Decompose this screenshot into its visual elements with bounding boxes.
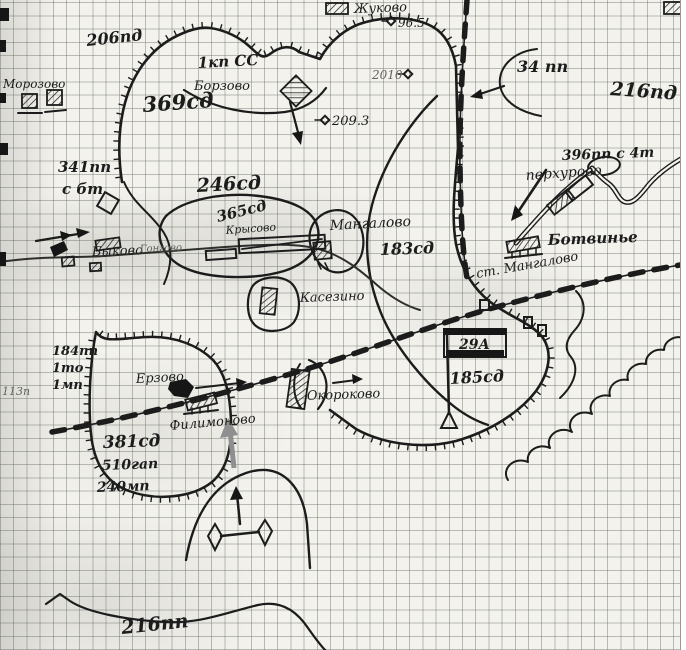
left-edge-marks <box>0 8 9 266</box>
map-drawing: 206пд Морозово 1кп СС Борзово 369сд Жуко… <box>0 0 686 650</box>
label-369sd: 369сд <box>142 87 215 117</box>
label-height-2010: 2010 <box>371 68 403 82</box>
kasezino-unit-symbol <box>260 287 278 314</box>
label-erzovo: Ерзово <box>134 369 184 387</box>
label-510gap: 510гап <box>102 456 159 474</box>
label-183sd: 183сд <box>379 238 434 259</box>
label-gongovo: Гонгово <box>139 243 183 255</box>
bottom-arc <box>186 470 310 568</box>
label-height-209-3: 209.3 <box>331 114 369 129</box>
label-246sd: 246сд <box>195 172 262 197</box>
label-1kpss: 1кп СС <box>197 51 259 72</box>
borzovo-diamond-symbol <box>280 75 311 106</box>
label-krysovo: Крысово <box>224 220 276 237</box>
boundary-west <box>124 182 170 284</box>
label-240mp: 240мп <box>96 478 150 496</box>
label-filimonovo: Филимоново <box>169 412 256 434</box>
label-kasezino: Касезино <box>299 289 365 306</box>
railroad-vertical <box>460 0 467 278</box>
hand-drawn-military-map: 206пд Морозово 1кп СС Борзово 369сд Жуко… <box>0 0 686 650</box>
label-184pp: 184пп <box>52 344 98 359</box>
label-396pp: 396пп с 4т <box>562 145 655 164</box>
label-29a: 29А <box>458 337 490 353</box>
label-206pd: 206пд <box>84 25 143 50</box>
zhukovo-unit-symbol <box>326 3 348 14</box>
cloud-chain <box>506 337 684 480</box>
cloud-bracket <box>560 291 584 398</box>
label-mangalovo: Мангалово <box>328 214 411 234</box>
okorokovo-arrow <box>333 374 363 384</box>
label-381sd: 381сд <box>102 431 160 453</box>
label-216pd: 216пд <box>609 78 678 105</box>
mangalovo-unit-symbol <box>313 241 331 269</box>
label-height-96-5: 96.5 <box>398 16 425 30</box>
label-bykovo: Быково <box>91 243 144 260</box>
bykovo-advance-arrow <box>36 228 90 241</box>
height-symbol-209-3 <box>315 116 329 124</box>
bottom-arrow-up <box>230 486 243 524</box>
label-185sd: 185сд <box>449 366 504 388</box>
label-1mp: 1мп <box>52 378 83 393</box>
erzovo-arrow <box>196 378 247 388</box>
label-okorokovo: Окороково <box>307 386 381 404</box>
label-zhukovo: Жуково <box>353 0 408 17</box>
label-34pp: 34 пп <box>517 57 568 76</box>
arrow-34pp <box>470 86 504 99</box>
label-113p: 113п <box>2 385 30 398</box>
label-morozovo: Морозово <box>2 77 65 91</box>
label-341pp: 341пп <box>58 158 111 176</box>
station-unit-symbol <box>505 236 542 258</box>
morozovo-symbols <box>18 90 66 113</box>
label-botvinye: Ботвинье <box>547 228 638 249</box>
scan-edge-strip <box>680 0 686 650</box>
label-216pp: 216пп <box>119 610 189 639</box>
label-1to: 1то <box>52 361 84 376</box>
label-sbt: с бт <box>62 180 103 198</box>
